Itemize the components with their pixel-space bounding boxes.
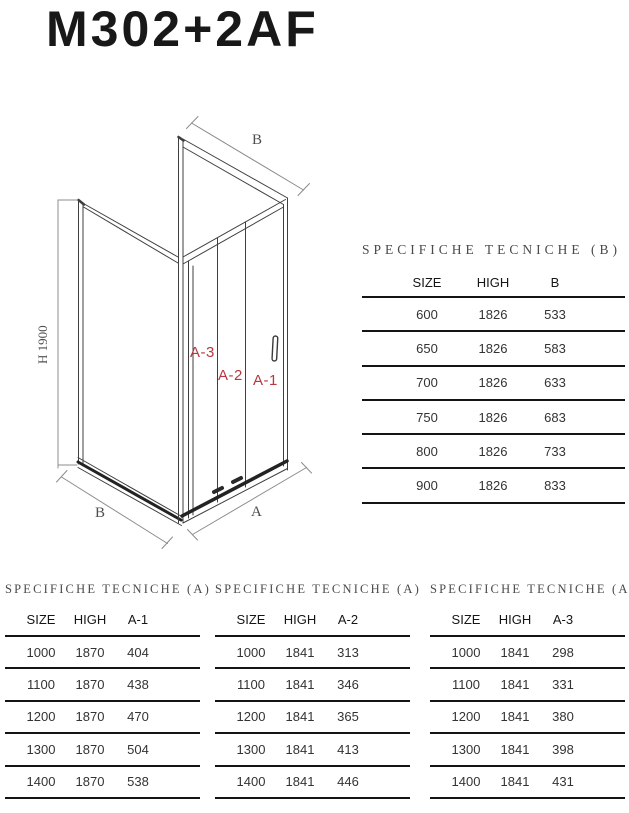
- table-row: 1000 1841 313: [215, 637, 410, 669]
- table-b-title: SPECIFICHE TECNICHE (B): [362, 242, 625, 258]
- cell-a1: 438: [111, 677, 165, 692]
- table-row: 1100 1841 331: [430, 669, 625, 701]
- column-header-b: B: [524, 275, 586, 290]
- cell-high: 1841: [279, 645, 321, 660]
- cell-high: 1841: [494, 645, 536, 660]
- column-header-high: HIGH: [279, 612, 321, 627]
- cell-high: 1841: [494, 774, 536, 789]
- dim-label-b-bottom: B: [95, 505, 105, 521]
- label-a2: A-2: [218, 367, 243, 384]
- cell-high: 1826: [462, 341, 524, 356]
- column-header-a2: A-2: [321, 612, 375, 627]
- cell-high: 1826: [462, 410, 524, 425]
- table-row: 800 1826 733: [362, 435, 625, 469]
- door-panels: [182, 200, 288, 524]
- cell-high: 1841: [279, 709, 321, 724]
- cell-size: 1000: [438, 645, 494, 660]
- cell-high: 1826: [462, 444, 524, 459]
- cell-high: 1870: [69, 645, 111, 660]
- cell-high: 1841: [494, 742, 536, 757]
- table-a2-title: SPECIFICHE TECNICHE (A): [215, 582, 410, 597]
- cell-high: 1870: [69, 709, 111, 724]
- table-row: 1300 1841 413: [215, 734, 410, 766]
- cell-high: 1826: [462, 307, 524, 322]
- column-header-a3: A-3: [536, 612, 590, 627]
- cell-high: 1841: [494, 677, 536, 692]
- cell-size: 1200: [438, 709, 494, 724]
- spec-table-b: SPECIFICHE TECNICHE (B) SIZE HIGH B 600 …: [362, 242, 625, 504]
- cell-size: 900: [392, 478, 462, 493]
- enclosure-diagram: B H 1900 B A A-3 A-2 A-1: [0, 0, 340, 560]
- table-a1-title: SPECIFICHE TECNICHE (A): [5, 582, 200, 597]
- cell-a1: 538: [111, 774, 165, 789]
- cell-b: 633: [524, 375, 586, 390]
- cell-size: 1300: [438, 742, 494, 757]
- table-row: 1400 1841 431: [430, 767, 625, 799]
- column-header-size: SIZE: [13, 612, 69, 627]
- table-row: 900 1826 833: [362, 469, 625, 503]
- cell-b: 833: [524, 478, 586, 493]
- back-panel: [179, 137, 288, 523]
- table-row: 750 1826 683: [362, 401, 625, 435]
- spec-table-a3: SPECIFICHE TECNICHE (A) SIZE HIGH A-3 10…: [430, 582, 625, 799]
- column-header-high: HIGH: [494, 612, 536, 627]
- table-row: 650 1826 583: [362, 332, 625, 366]
- table-row: 700 1826 633: [362, 367, 625, 401]
- cell-b: 683: [524, 410, 586, 425]
- cell-size: 1200: [223, 709, 279, 724]
- column-header-size: SIZE: [392, 275, 462, 290]
- cell-a2: 346: [321, 677, 375, 692]
- table-row: 1200 1841 365: [215, 702, 410, 734]
- cell-size: 1300: [13, 742, 69, 757]
- table-a3-title: SPECIFICHE TECNICHE (A): [430, 582, 625, 597]
- column-header-high: HIGH: [69, 612, 111, 627]
- cell-size: 1000: [13, 645, 69, 660]
- cell-a3: 398: [536, 742, 590, 757]
- dim-label-a-bottom: A: [251, 504, 262, 520]
- spec-table-a1: SPECIFICHE TECNICHE (A) SIZE HIGH A-1 10…: [5, 582, 200, 799]
- table-row: 1400 1870 538: [5, 767, 200, 799]
- cell-size: 650: [392, 341, 462, 356]
- cell-high: 1870: [69, 774, 111, 789]
- cell-size: 1400: [223, 774, 279, 789]
- dim-label-b-top: B: [252, 132, 262, 148]
- table-row: 1300 1870 504: [5, 734, 200, 766]
- cell-high: 1870: [69, 677, 111, 692]
- dimension-lines: [57, 117, 312, 549]
- table-row: 1300 1841 398: [430, 734, 625, 766]
- table-a2-header-row: SIZE HIGH A-2: [215, 604, 410, 637]
- table-row: 600 1826 533: [362, 298, 625, 332]
- cell-a2: 313: [321, 645, 375, 660]
- cell-size: 1200: [13, 709, 69, 724]
- cell-size: 800: [392, 444, 462, 459]
- cell-a2: 413: [321, 742, 375, 757]
- cell-high: 1841: [279, 774, 321, 789]
- column-header-high: HIGH: [462, 275, 524, 290]
- table-row: 1100 1870 438: [5, 669, 200, 701]
- column-header-size: SIZE: [223, 612, 279, 627]
- column-header-a1: A-1: [111, 612, 165, 627]
- column-header-size: SIZE: [438, 612, 494, 627]
- dim-label-height: H 1900: [35, 325, 50, 364]
- cell-size: 1400: [13, 774, 69, 789]
- left-panel: [78, 200, 182, 526]
- cell-high: 1841: [279, 742, 321, 757]
- table-row: 1100 1841 346: [215, 669, 410, 701]
- cell-size: 1300: [223, 742, 279, 757]
- table-a1-header-row: SIZE HIGH A-1: [5, 604, 200, 637]
- table-row: 1200 1870 470: [5, 702, 200, 734]
- table-row: 1000 1870 404: [5, 637, 200, 669]
- label-a1: A-1: [253, 372, 278, 389]
- door-panel-labels: A-3 A-2 A-1: [190, 344, 278, 389]
- cell-size: 1400: [438, 774, 494, 789]
- table-a3-header-row: SIZE HIGH A-3: [430, 604, 625, 637]
- table-row: 1000 1841 298: [430, 637, 625, 669]
- cell-a2: 365: [321, 709, 375, 724]
- cell-high: 1870: [69, 742, 111, 757]
- cell-a1: 470: [111, 709, 165, 724]
- table-b-header-row: SIZE HIGH B: [362, 268, 625, 298]
- table-row: 1400 1841 446: [215, 767, 410, 799]
- cell-a3: 298: [536, 645, 590, 660]
- cell-a1: 504: [111, 742, 165, 757]
- cell-size: 750: [392, 410, 462, 425]
- cell-size: 600: [392, 307, 462, 322]
- cell-a1: 404: [111, 645, 165, 660]
- cell-high: 1826: [462, 478, 524, 493]
- label-a3: A-3: [190, 344, 215, 361]
- table-row: 1200 1841 380: [430, 702, 625, 734]
- cell-b: 583: [524, 341, 586, 356]
- cell-size: 1000: [223, 645, 279, 660]
- cell-a3: 380: [536, 709, 590, 724]
- door-handle-icon: [272, 336, 278, 361]
- spec-table-a2: SPECIFICHE TECNICHE (A) SIZE HIGH A-2 10…: [215, 582, 410, 799]
- cell-a3: 331: [536, 677, 590, 692]
- cell-high: 1841: [494, 709, 536, 724]
- cell-size: 1100: [223, 677, 279, 692]
- cell-high: 1826: [462, 375, 524, 390]
- cell-b: 533: [524, 307, 586, 322]
- cell-size: 1100: [13, 677, 69, 692]
- cell-a3: 431: [536, 774, 590, 789]
- cell-size: 700: [392, 375, 462, 390]
- cell-a2: 446: [321, 774, 375, 789]
- cell-high: 1841: [279, 677, 321, 692]
- cell-b: 733: [524, 444, 586, 459]
- cell-size: 1100: [438, 677, 494, 692]
